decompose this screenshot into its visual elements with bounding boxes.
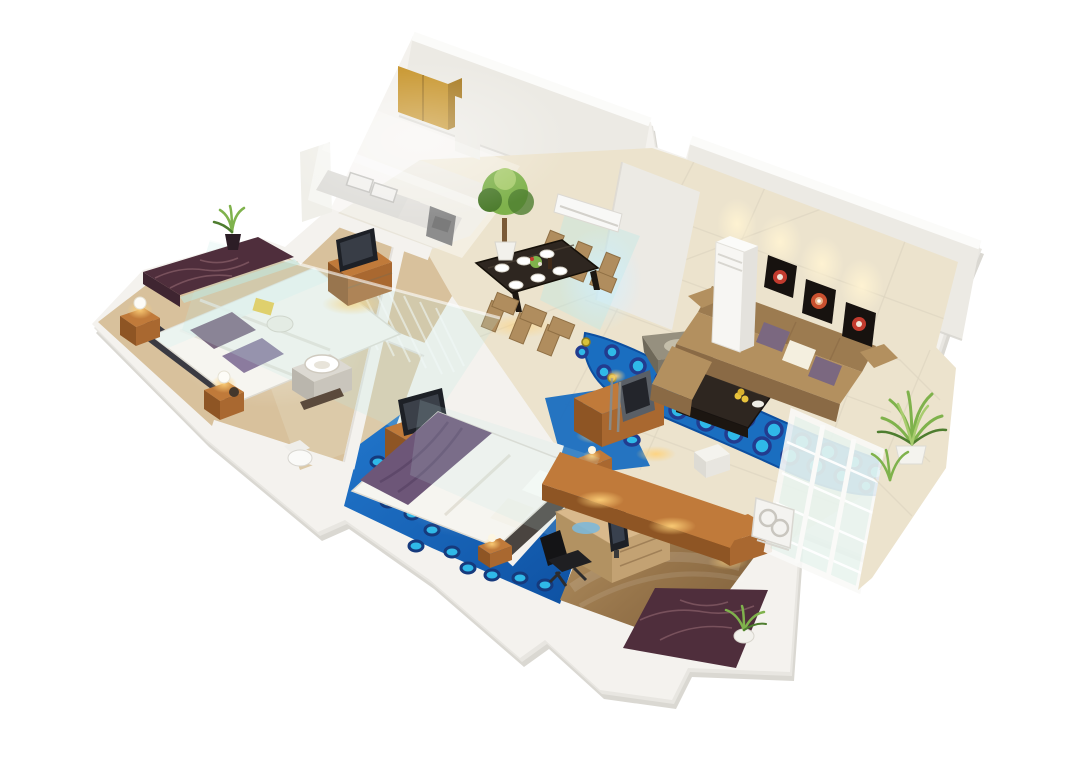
desk-mat [572,522,600,534]
ac-tower [712,236,758,352]
bottle [548,258,552,269]
planter [896,446,926,464]
table-lamp [218,371,230,383]
cup [752,401,764,408]
clock [229,387,239,397]
apartment-render: Two-bedroom apartment, 3D cutaway view O… [0,0,1080,764]
light-haze [270,60,570,220]
table-lamp [134,297,146,309]
tree-pot [495,242,516,260]
floor-plan-stage: Two-bedroom apartment, 3D cutaway view O… [0,0,1080,764]
